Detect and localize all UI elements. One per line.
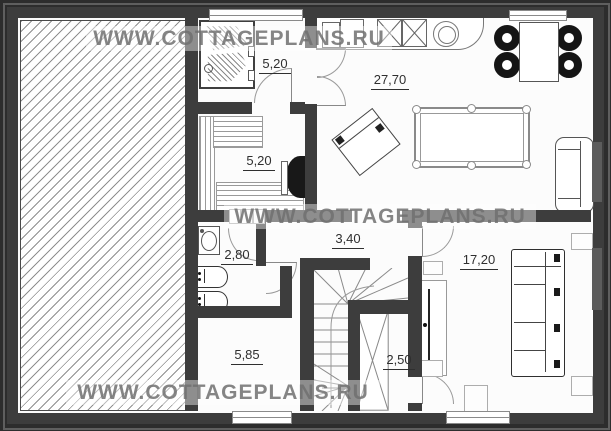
wall xyxy=(198,102,252,114)
shower-door-handle xyxy=(248,70,255,81)
shower-knob xyxy=(204,64,213,73)
wall xyxy=(300,258,370,270)
speaker xyxy=(423,261,443,275)
watermark: WWW.COTTAGEPLANS.RU xyxy=(224,204,536,229)
pool-table-felt xyxy=(420,113,524,162)
wall xyxy=(408,403,422,411)
pool-table xyxy=(414,107,530,168)
washbasin-bowl xyxy=(201,231,217,251)
floor-plan: 5,20 5,20 27,70 3,40 2,80 17,20 5,85 2,5… xyxy=(0,0,611,431)
speaker xyxy=(571,376,593,396)
wall xyxy=(198,306,290,318)
room-label-hall-upper: 3,40 xyxy=(328,232,368,245)
kitchen-sink xyxy=(433,21,459,47)
window xyxy=(232,411,292,424)
toilet xyxy=(196,266,228,288)
room-label-sauna: 5,20 xyxy=(238,154,280,167)
pouf xyxy=(464,385,488,413)
speaker xyxy=(421,360,443,377)
wall xyxy=(185,18,198,411)
dining-chair xyxy=(494,25,520,51)
room-label-hall-lower: 5,85 xyxy=(226,348,268,361)
window xyxy=(446,411,510,424)
wall xyxy=(305,104,317,210)
sauna-stove-guard xyxy=(281,161,288,195)
watermark: WWW.COTTAGEPLANS.RU xyxy=(86,26,392,51)
window xyxy=(592,142,602,202)
sofa xyxy=(555,137,594,213)
dining-chair xyxy=(556,25,582,51)
dining-chair xyxy=(494,52,520,78)
corner-sofa xyxy=(511,249,565,377)
window xyxy=(209,9,303,21)
room-label-closet: 2,50 xyxy=(378,353,420,366)
speaker xyxy=(571,233,593,250)
watermark: WWW.COTTAGEPLANS.RU xyxy=(66,380,380,405)
room-label-shower: 5,20 xyxy=(254,57,296,70)
wall xyxy=(280,266,292,318)
room-label-bathroom: 2,80 xyxy=(217,248,257,261)
dining-chair xyxy=(556,52,582,78)
window xyxy=(509,10,567,21)
wall xyxy=(290,102,305,114)
hatched-area xyxy=(20,20,187,411)
room-label-living: 27,70 xyxy=(366,73,414,86)
room-label-bedroom: 17,20 xyxy=(455,253,503,266)
dining-table xyxy=(519,22,559,82)
sauna-bench xyxy=(213,116,263,148)
window xyxy=(592,248,602,310)
kitchen-sink-bowl xyxy=(438,26,456,44)
